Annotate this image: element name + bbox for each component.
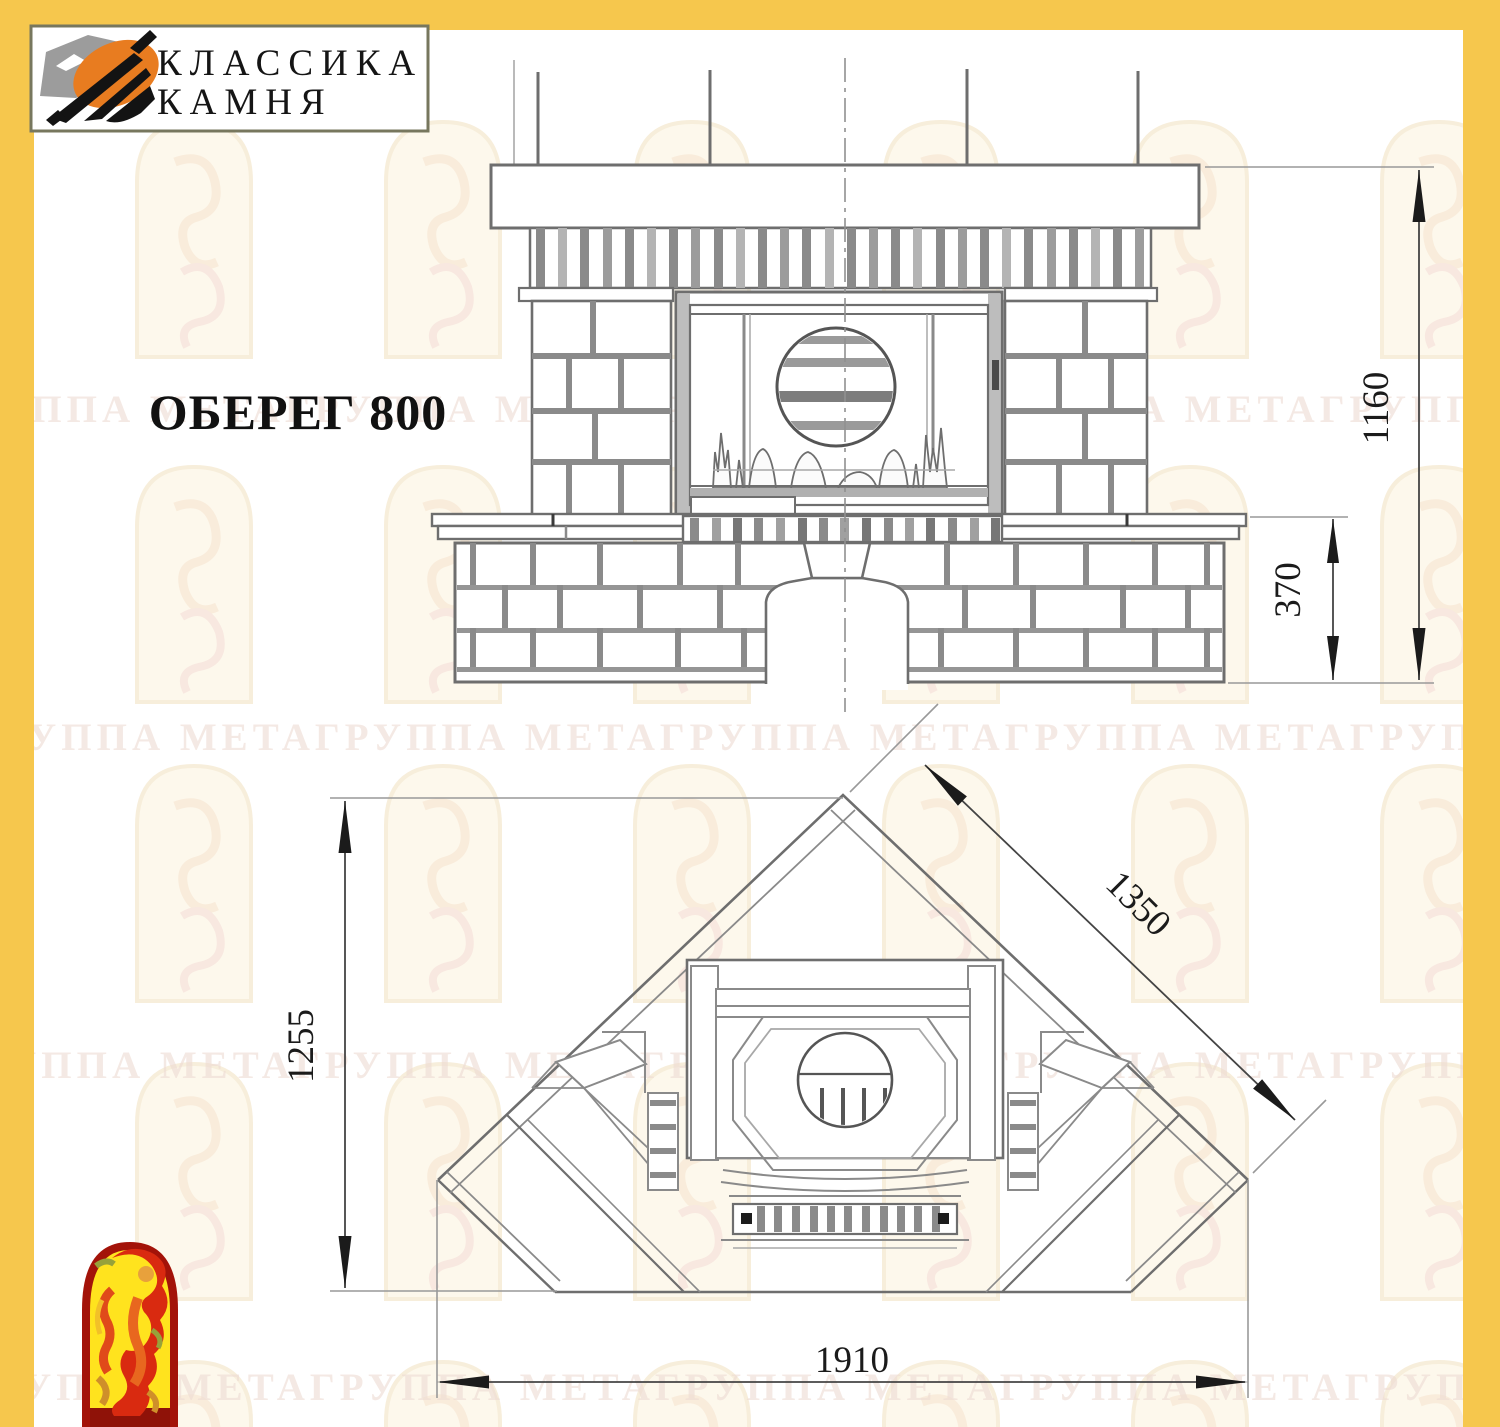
svg-text:ГРУППА МЕТАГРУППА МЕТАГРУППА М: ГРУППА МЕТАГРУППА МЕТАГРУППА МЕТАГРУППА …	[0, 716, 1500, 759]
svg-text:1255: 1255	[281, 1009, 322, 1083]
svg-text:1910: 1910	[815, 1340, 889, 1381]
svg-text:КЛАССИКА: КЛАССИКА	[157, 43, 423, 84]
svg-text:370: 370	[1268, 562, 1309, 618]
svg-text:ОБЕРЕГ 800: ОБЕРЕГ 800	[149, 384, 448, 440]
svg-text:ГРУППА МЕТАГРУППА МЕТАГРУППА М: ГРУППА МЕТАГРУППА МЕТАГРУППА МЕТАГРУППА …	[0, 1366, 1500, 1409]
svg-text:1160: 1160	[1356, 372, 1397, 445]
svg-text:КАМНЯ: КАМНЯ	[157, 82, 333, 123]
